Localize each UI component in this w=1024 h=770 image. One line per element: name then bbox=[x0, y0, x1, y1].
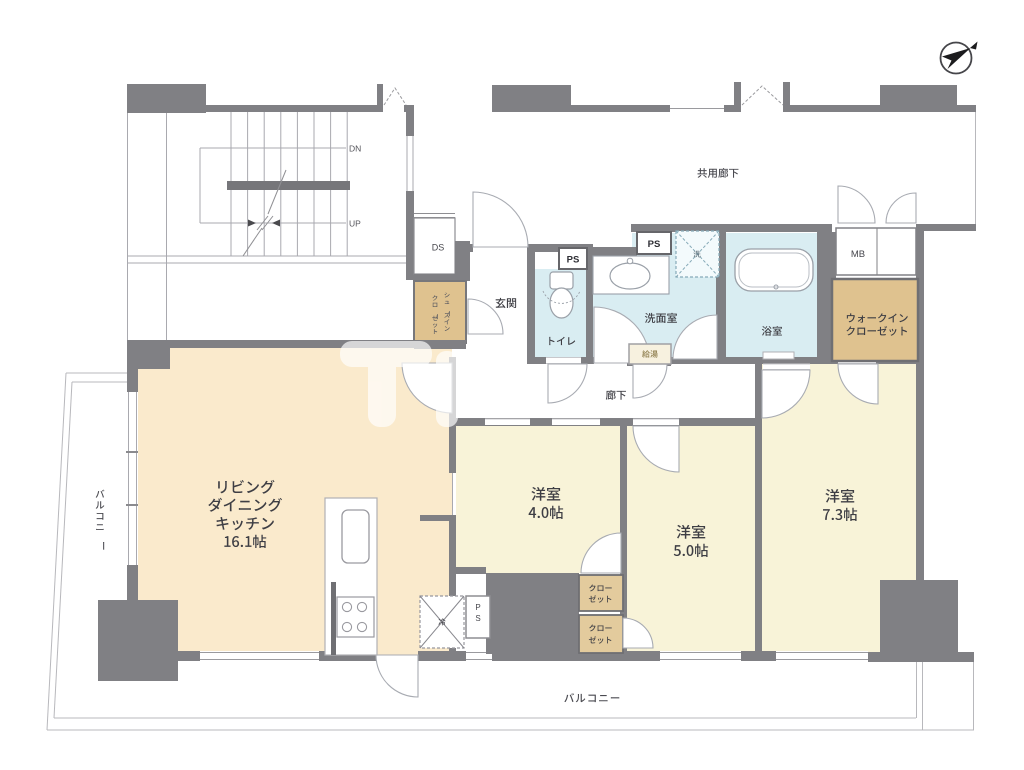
svg-text:P: P bbox=[475, 603, 480, 612]
svg-text:DN: DN bbox=[349, 144, 361, 154]
svg-text:UP: UP bbox=[349, 219, 361, 229]
svg-text:PS: PS bbox=[648, 239, 661, 250]
svg-text:MB: MB bbox=[851, 249, 865, 260]
svg-text:PS: PS bbox=[567, 255, 580, 266]
svg-text:S: S bbox=[475, 614, 480, 623]
svg-text:DS: DS bbox=[432, 243, 445, 253]
